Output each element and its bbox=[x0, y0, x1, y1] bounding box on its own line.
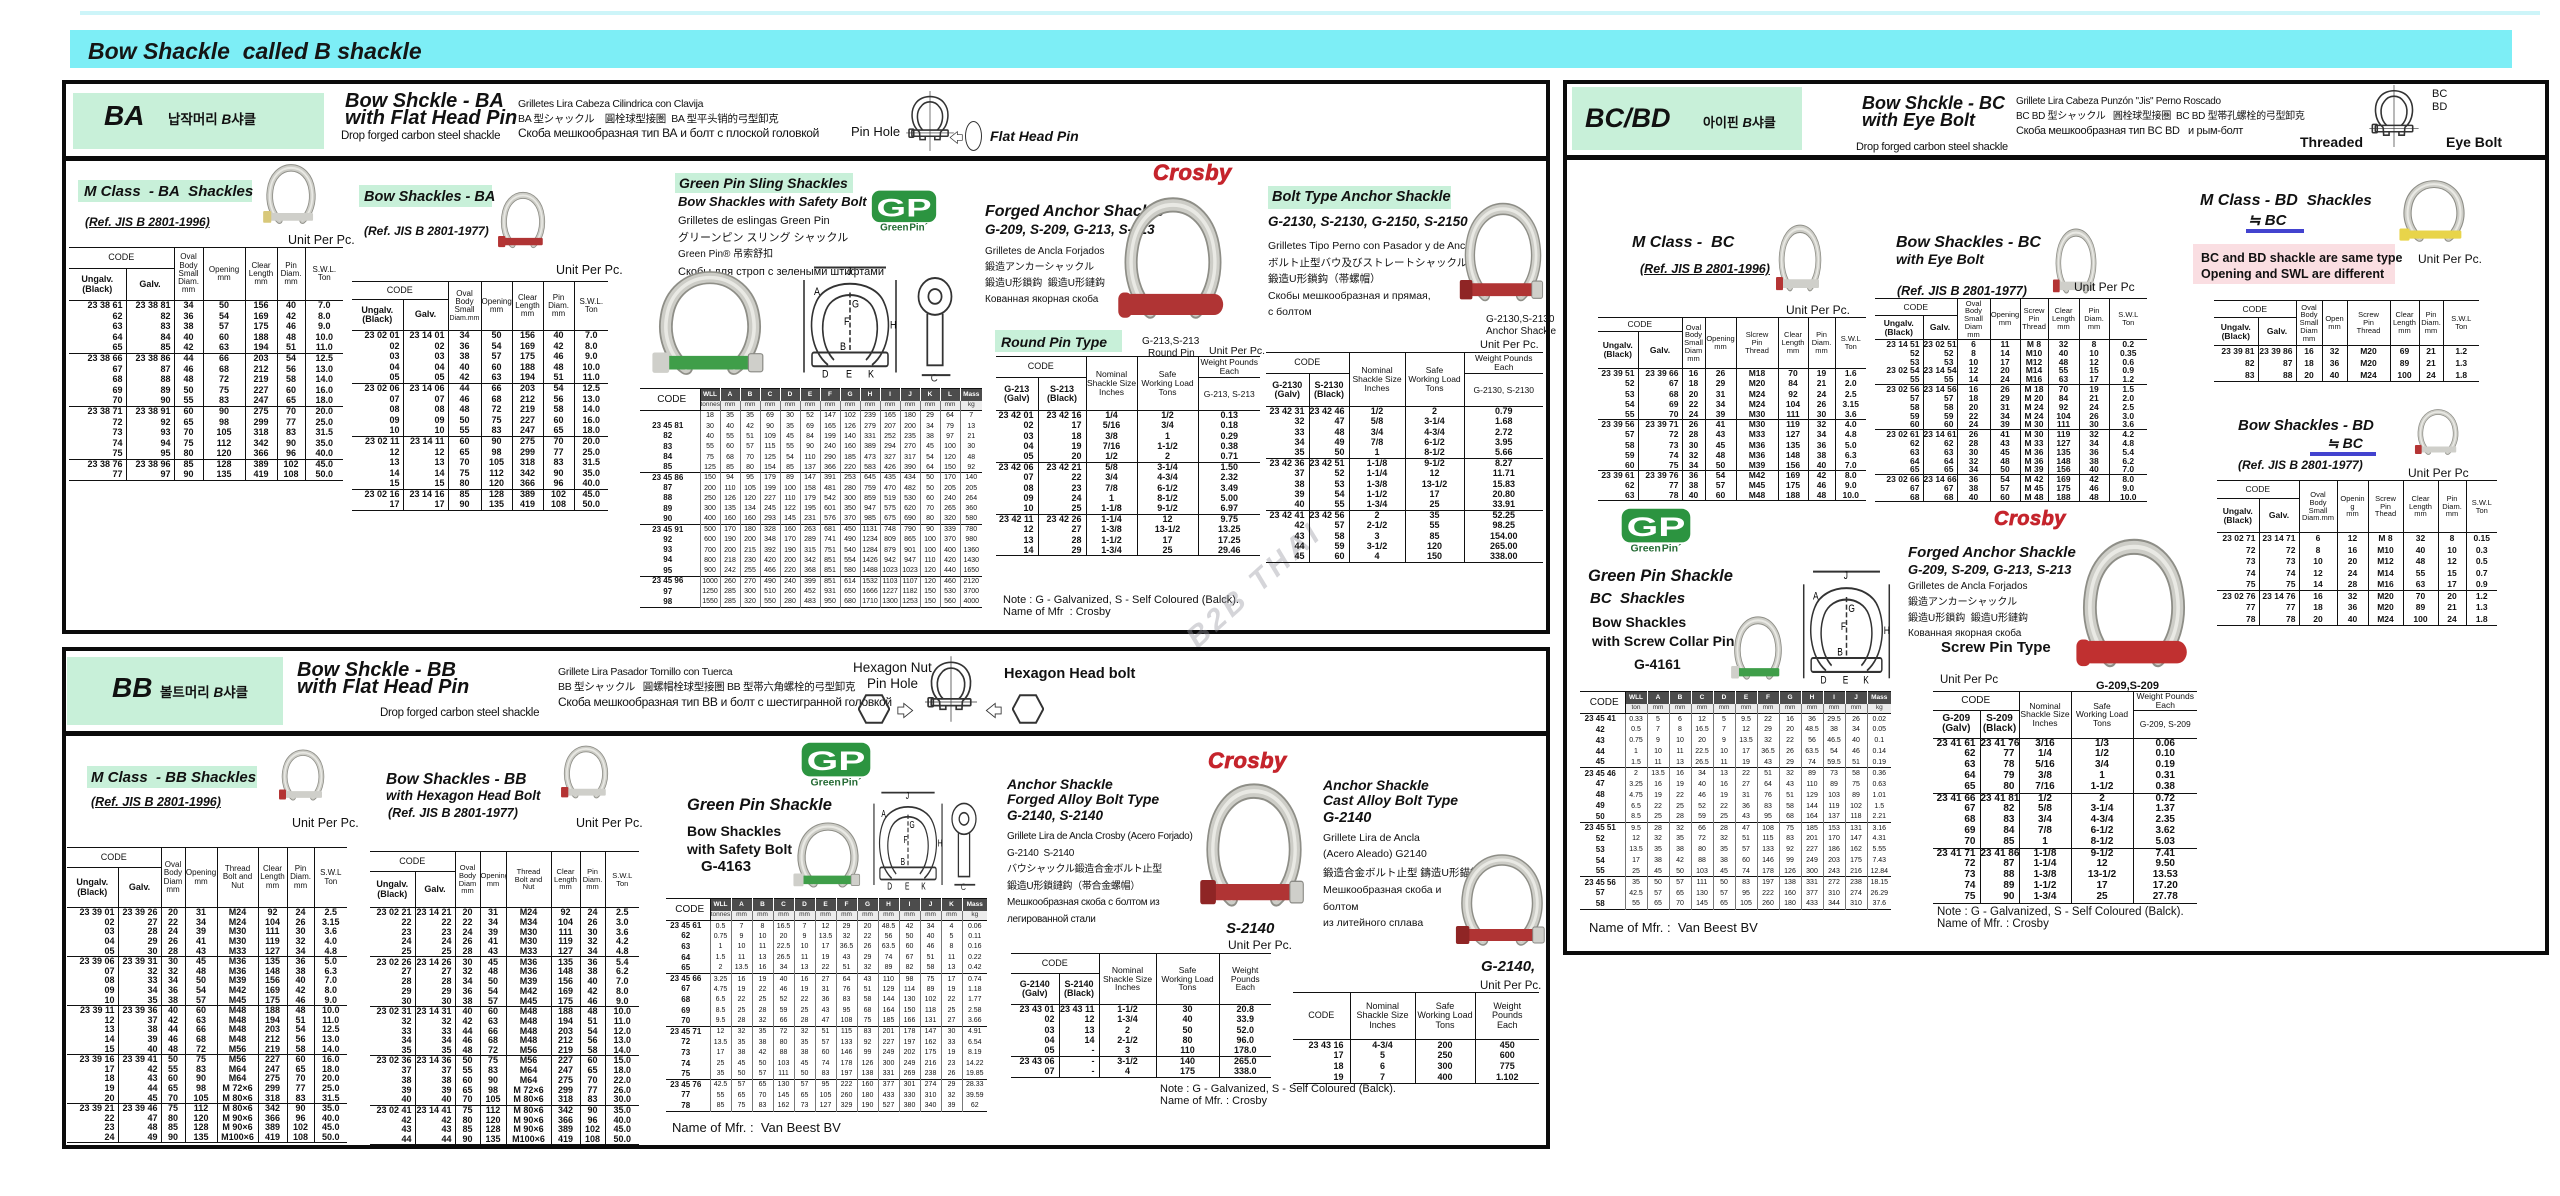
svg-text:Green Pin´: Green Pin´ bbox=[1630, 543, 1682, 554]
svg-text:B: B bbox=[840, 341, 846, 353]
svg-text:H: H bbox=[890, 320, 897, 332]
svg-text:A: A bbox=[1813, 590, 1819, 603]
svg-text:A: A bbox=[814, 286, 820, 298]
svg-text:E: E bbox=[846, 369, 852, 381]
svg-text:Green Pin´: Green Pin´ bbox=[810, 777, 862, 788]
svg-text:B: B bbox=[901, 856, 906, 868]
svg-text:C: C bbox=[931, 372, 939, 385]
svg-text:G: G bbox=[909, 818, 914, 830]
svg-text:K: K bbox=[1863, 674, 1869, 687]
svg-text:G: G bbox=[852, 299, 859, 311]
svg-text:A: A bbox=[881, 807, 886, 819]
svg-text:GP: GP bbox=[807, 746, 866, 776]
svg-text:D: D bbox=[1820, 674, 1826, 687]
svg-text:F: F bbox=[844, 316, 849, 328]
svg-text:K: K bbox=[921, 880, 926, 892]
svg-text:C: C bbox=[961, 881, 966, 892]
svg-text:F: F bbox=[1841, 621, 1846, 634]
svg-text:G: G bbox=[1848, 603, 1855, 616]
svg-text:Green Pin´: Green Pin´ bbox=[880, 223, 928, 232]
svg-text:J: J bbox=[906, 790, 909, 802]
svg-text:H: H bbox=[1884, 625, 1890, 638]
svg-text:H: H bbox=[938, 837, 943, 849]
svg-text:E: E bbox=[905, 880, 910, 892]
svg-text:J: J bbox=[1844, 570, 1848, 583]
svg-text:GP: GP bbox=[1627, 512, 1686, 542]
svg-text:D: D bbox=[822, 369, 829, 381]
svg-text:E: E bbox=[1843, 674, 1849, 687]
svg-text:D: D bbox=[887, 880, 892, 892]
svg-text:GP: GP bbox=[876, 194, 931, 222]
svg-text:F: F bbox=[904, 834, 908, 846]
svg-text:J: J bbox=[847, 266, 852, 278]
svg-text:B: B bbox=[1837, 646, 1843, 659]
svg-text:K: K bbox=[868, 369, 874, 381]
